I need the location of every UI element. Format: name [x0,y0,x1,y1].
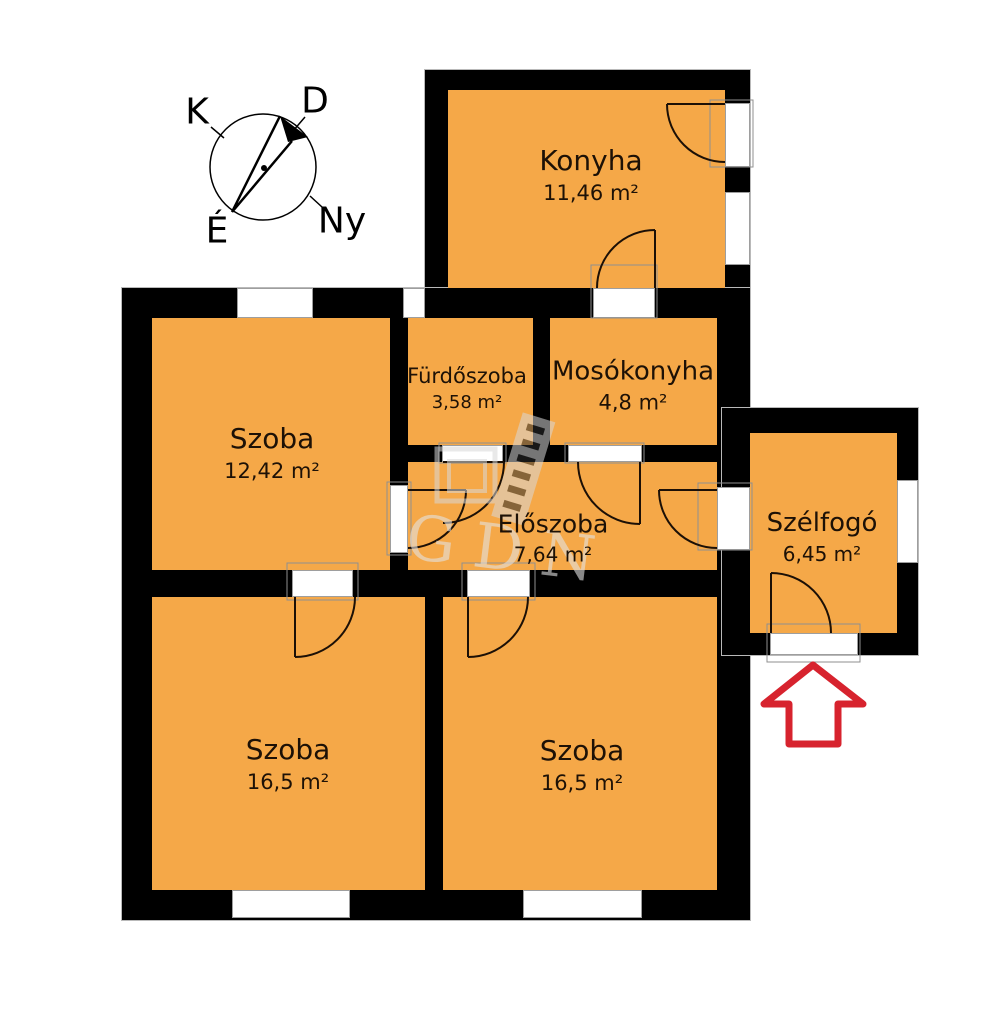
room-label-szoba-jobb: Szoba 16,5 m² [540,734,625,796]
room-label-furdoszoba: Fürdőszoba 3,58 m² [407,364,527,414]
room-area: 6,45 m² [767,542,878,566]
room-label-konyha: Konyha 11,46 m² [539,144,642,206]
compass-icon [210,114,322,220]
window-bottom-szoba-bal [232,890,350,918]
room-name: Szoba [246,733,331,767]
window-konyha-right [725,192,750,265]
floor-plan: GDN K D Ny É Konyha 11,46 m² Fürdőszoba … [0,0,1005,1024]
room-area: 16,5 m² [540,771,625,796]
window-top-furdoszoba [403,288,425,318]
room-label-mosokonyha: Mosókonyha 4,8 m² [552,356,714,415]
room-name: Fürdőszoba [407,364,527,389]
room-name: Konyha [539,144,642,178]
room-area: 16,5 m² [246,770,331,795]
room-label-eloszoba: Előszoba 7,64 m² [498,510,609,567]
compass-label-north: É [206,211,229,252]
room-area: 4,8 m² [552,391,714,416]
door-opening-szoba-bal [292,570,353,597]
room-name: Mosókonyha [552,356,714,387]
room-name: Szoba [540,734,625,768]
window-szelfogo-right [897,480,918,563]
window-top-szoba [237,288,313,318]
door-opening-furdoszoba [442,445,503,462]
room-name: Előszoba [498,510,609,540]
compass-label-south: D [301,81,329,122]
room-area: 12,42 m² [224,459,320,484]
room-name: Szoba [224,422,320,456]
room-area: 3,58 m² [407,392,527,414]
room-label-szelfogo: Szélfogó 6,45 m² [767,508,878,566]
door-opening-szelfogo-entrance [770,633,858,655]
door-opening-konyha-entry [725,103,750,167]
entrance-arrow-icon [764,665,863,744]
room-name: Szélfogó [767,508,878,539]
compass-label-east: K [185,92,209,133]
room-label-szoba-bal: Szoba 16,5 m² [246,733,331,795]
window-bottom-szoba-jobb [523,890,642,918]
door-opening-mosokonyha [568,445,642,462]
door-opening-eloszoba-szelfogo [717,487,750,550]
room-area: 11,46 m² [539,181,642,206]
room-area: 7,64 m² [498,543,609,567]
compass-label-west: Ny [318,201,366,242]
room-label-szoba-felso: Szoba 12,42 m² [224,422,320,484]
door-opening-konyha-mosokonyha [593,288,655,318]
